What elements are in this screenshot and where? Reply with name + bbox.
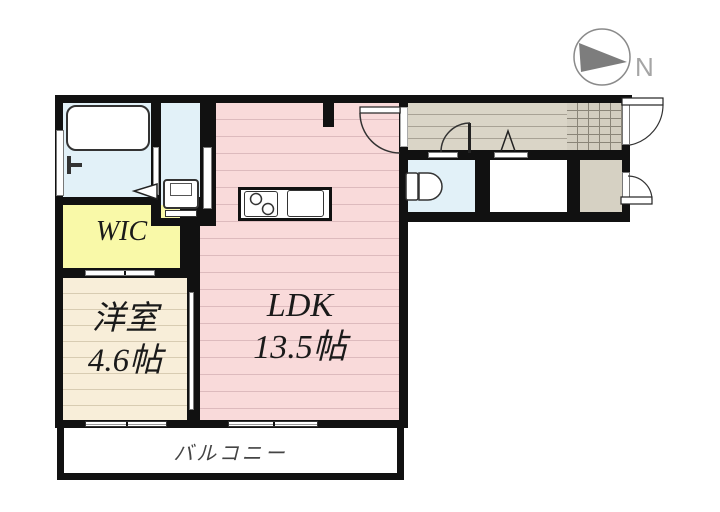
- toilet-door-opening: [428, 152, 458, 158]
- ldk-entry-opening: [400, 107, 408, 147]
- compass-label: N: [635, 52, 654, 82]
- closet-room-floor: [580, 158, 622, 212]
- toilet-room-floor: [404, 160, 475, 212]
- wall-top: [55, 95, 632, 103]
- ldk-label: LDK 13.5帖: [200, 285, 400, 369]
- wall-bath-wic: [55, 197, 161, 205]
- entrance-door-arc: [630, 105, 663, 145]
- stove: [244, 191, 278, 217]
- hallway-floor: [404, 103, 567, 150]
- storage-door-opening: [494, 152, 528, 158]
- bathroom-door-opening: [153, 147, 159, 195]
- ldk-size: 13.5帖: [200, 327, 400, 369]
- washroom-door-opening: [203, 147, 212, 209]
- bedroom-size: 4.6帖: [63, 340, 187, 382]
- wall-toilet-storage: [475, 160, 490, 212]
- ldk-floor: [200, 103, 399, 420]
- bedroom-balcony-window: [85, 421, 167, 427]
- floor-plan: N: [0, 0, 720, 512]
- ldk-balcony-window: [228, 421, 318, 427]
- wall-ldk-stub: [323, 95, 334, 127]
- bedroom-name: 洋室: [63, 298, 187, 340]
- closet-door-opening: [622, 172, 630, 204]
- wall-wing-bottom: [400, 212, 630, 222]
- washbasin-bowl: [170, 183, 192, 196]
- balcony-label: バルコニー: [64, 437, 397, 466]
- wic-label: WIC: [63, 216, 180, 248]
- wall-storage-closet: [567, 155, 580, 212]
- ldk-name: LDK: [200, 285, 400, 327]
- wic-door-divider: [124, 271, 126, 275]
- bathroom-window: [56, 130, 64, 196]
- bathtub: [66, 105, 150, 151]
- bedroom-label: 洋室 4.6帖: [63, 298, 187, 382]
- window-divider: [273, 422, 275, 426]
- entrance-tile-floor: [567, 103, 622, 150]
- bedroom-sliding-door: [189, 292, 194, 410]
- storage-room-floor: [490, 160, 567, 212]
- closet-door-arc: [628, 176, 652, 200]
- wic-sliding-door: [85, 270, 155, 276]
- kitchen-sink: [287, 190, 324, 217]
- window-divider: [126, 422, 128, 426]
- entrance-door-opening: [622, 103, 630, 145]
- compass: N: [563, 22, 678, 94]
